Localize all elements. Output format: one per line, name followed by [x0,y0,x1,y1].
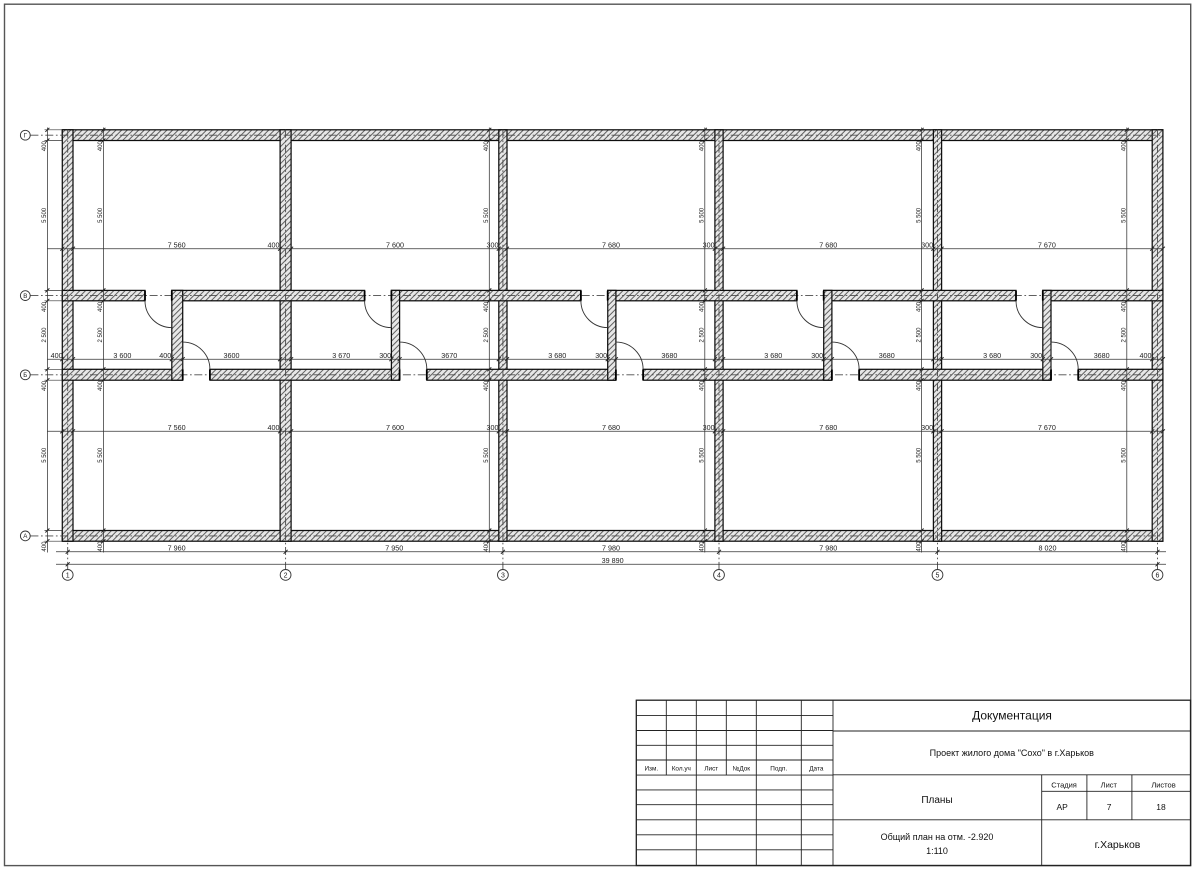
svg-text:Общий план на отм. -2.920: Общий план на отм. -2.920 [881,832,994,842]
svg-text:2 500: 2 500 [42,327,48,343]
svg-text:В: В [23,293,27,300]
svg-text:Лист: Лист [704,765,718,772]
svg-text:400: 400 [700,380,706,391]
svg-text:300: 300 [703,240,715,249]
svg-text:6: 6 [1156,573,1160,580]
svg-text:400: 400 [1122,380,1128,391]
svg-text:Кол.уч: Кол.уч [672,765,691,772]
svg-text:3 600: 3 600 [113,351,131,360]
svg-text:2 500: 2 500 [916,327,922,343]
svg-text:2 500: 2 500 [98,327,104,343]
svg-text:300: 300 [487,240,499,249]
svg-text:Б: Б [23,372,27,379]
svg-text:400: 400 [916,541,922,552]
svg-text:7 680: 7 680 [819,240,837,249]
svg-text:400: 400 [42,380,48,391]
svg-text:5 500: 5 500 [42,207,48,223]
svg-text:400: 400 [1122,541,1128,552]
svg-text:5 500: 5 500 [700,447,706,463]
svg-text:5 500: 5 500 [700,207,706,223]
svg-text:7 560: 7 560 [168,240,186,249]
svg-text:7 600: 7 600 [386,240,404,249]
svg-text:400: 400 [484,541,490,552]
svg-text:400: 400 [700,141,706,152]
svg-text:5 500: 5 500 [484,447,490,463]
svg-text:5 500: 5 500 [42,447,48,463]
svg-text:400: 400 [916,301,922,312]
svg-text:300: 300 [921,240,933,249]
svg-text:400: 400 [98,541,104,552]
svg-text:400: 400 [484,301,490,312]
svg-text:300: 300 [811,351,823,360]
svg-text:400: 400 [700,541,706,552]
svg-text:300: 300 [1030,351,1042,360]
svg-text:400: 400 [42,541,48,552]
svg-text:7 950: 7 950 [385,544,403,553]
svg-text:7: 7 [1107,802,1112,812]
svg-text:Стадия: Стадия [1051,781,1077,790]
svg-text:8 020: 8 020 [1039,544,1057,553]
svg-text:7 670: 7 670 [1038,423,1056,432]
svg-text:7 670: 7 670 [1038,240,1056,249]
svg-text:400: 400 [98,141,104,152]
svg-text:400: 400 [484,141,490,152]
svg-text:400: 400 [1122,301,1128,312]
svg-text:2: 2 [284,573,288,580]
svg-text:5 500: 5 500 [916,447,922,463]
svg-text:7 680: 7 680 [602,240,620,249]
svg-text:7 680: 7 680 [819,423,837,432]
svg-text:400: 400 [1122,141,1128,152]
svg-text:3600: 3600 [224,351,240,360]
svg-text:400: 400 [98,301,104,312]
svg-text:400: 400 [42,301,48,312]
svg-text:400: 400 [484,380,490,391]
svg-text:7 980: 7 980 [602,544,620,553]
svg-text:4: 4 [717,573,721,580]
svg-text:3680: 3680 [661,351,677,360]
svg-text:3680: 3680 [879,351,895,360]
svg-text:3 680: 3 680 [983,351,1001,360]
svg-text:1: 1 [66,573,70,580]
svg-text:300: 300 [595,351,607,360]
svg-text:400: 400 [268,240,280,249]
svg-text:3 680: 3 680 [764,351,782,360]
svg-text:2 500: 2 500 [700,327,706,343]
svg-text:7 600: 7 600 [386,423,404,432]
svg-text:3: 3 [501,573,505,580]
svg-text:Планы: Планы [921,795,952,806]
svg-text:7 560: 7 560 [168,423,186,432]
svg-text:300: 300 [379,351,391,360]
svg-text:7 680: 7 680 [602,423,620,432]
svg-text:3 670: 3 670 [332,351,350,360]
svg-text:5 500: 5 500 [1122,447,1128,463]
svg-text:5 500: 5 500 [916,207,922,223]
svg-text:3 680: 3 680 [548,351,566,360]
svg-text:18: 18 [1156,802,1166,812]
svg-text:АР: АР [1057,802,1069,812]
svg-text:5: 5 [936,573,940,580]
svg-text:7 960: 7 960 [168,544,186,553]
svg-text:Дата: Дата [809,765,824,772]
svg-text:5 500: 5 500 [98,447,104,463]
svg-text:300: 300 [487,423,499,432]
svg-text:39 890: 39 890 [602,556,624,565]
svg-text:400: 400 [42,141,48,152]
svg-text:Документация: Документация [972,709,1052,723]
svg-text:Подп.: Подп. [770,765,787,772]
svg-text:№Док: №Док [732,765,750,772]
svg-text:400: 400 [1140,351,1152,360]
svg-text:Лист: Лист [1101,781,1118,790]
svg-text:400: 400 [159,351,171,360]
svg-text:400: 400 [916,380,922,391]
svg-text:5 500: 5 500 [484,207,490,223]
svg-text:Проект жилого дома "Сохо" в г.: Проект жилого дома "Сохо" в г.Харьков [930,748,1095,758]
svg-text:300: 300 [703,423,715,432]
svg-text:5 500: 5 500 [1122,207,1128,223]
svg-text:7 980: 7 980 [819,544,837,553]
svg-text:400: 400 [98,380,104,391]
svg-text:г.Харьков: г.Харьков [1095,839,1141,851]
svg-text:400: 400 [916,141,922,152]
svg-text:2 500: 2 500 [1122,327,1128,343]
svg-text:300: 300 [921,423,933,432]
svg-text:3680: 3680 [1094,351,1110,360]
svg-text:400: 400 [268,423,280,432]
svg-text:400: 400 [51,351,63,360]
svg-text:Изм.: Изм. [644,765,658,772]
svg-text:3670: 3670 [441,351,457,360]
svg-text:5 500: 5 500 [98,207,104,223]
svg-text:2 500: 2 500 [484,327,490,343]
svg-text:Листов: Листов [1151,781,1175,790]
svg-text:400: 400 [700,301,706,312]
svg-text:1:110: 1:110 [926,846,948,856]
